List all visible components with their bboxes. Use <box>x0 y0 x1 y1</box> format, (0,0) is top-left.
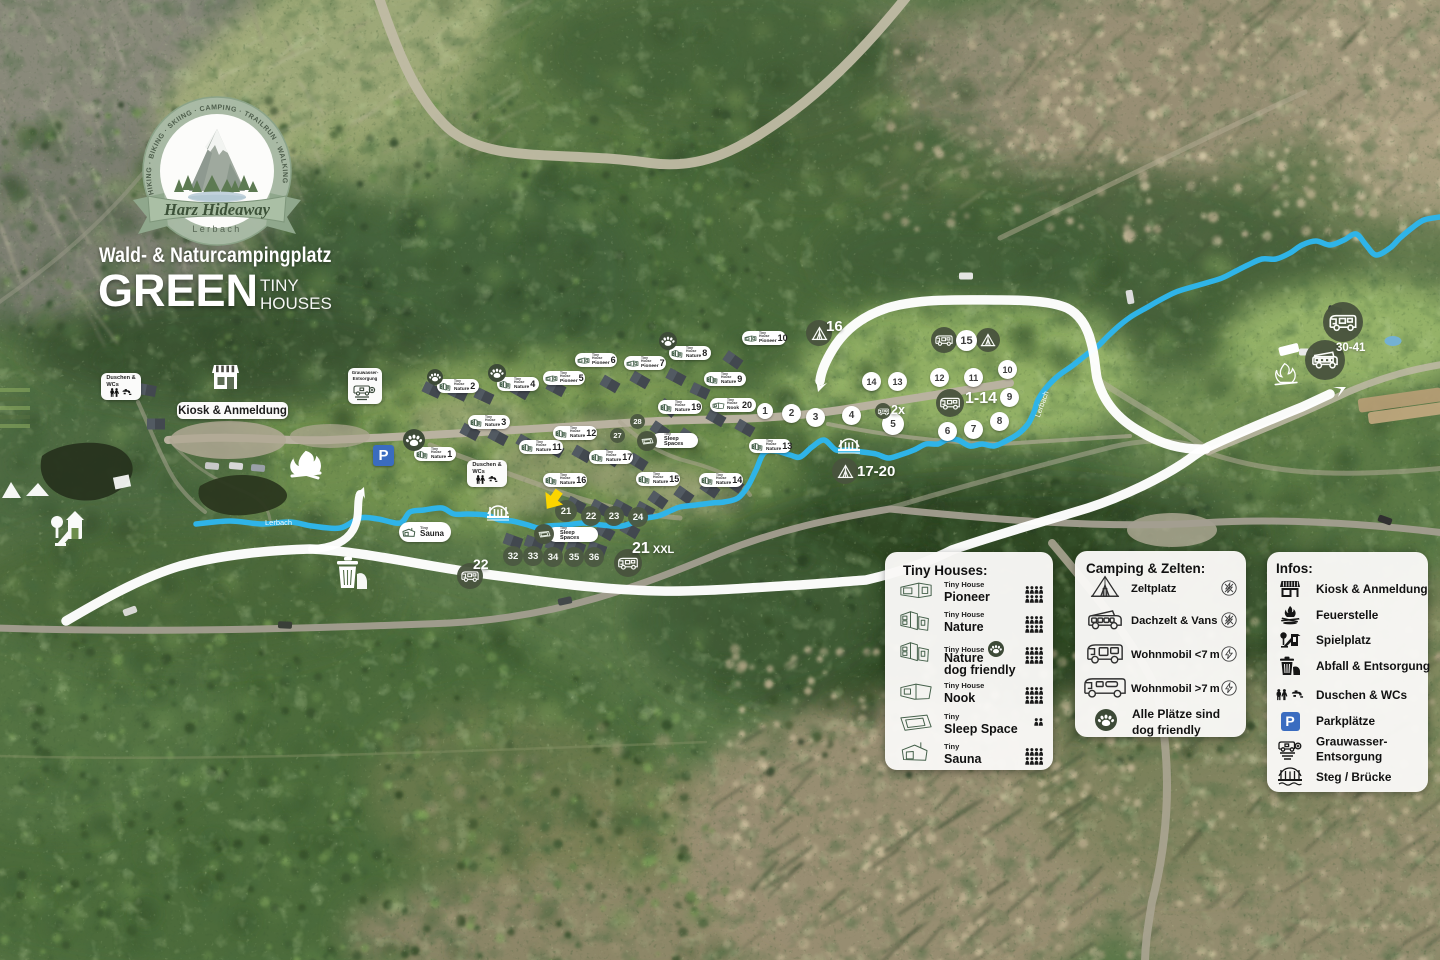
svg-text:Harz Hideaway: Harz Hideaway <box>163 200 271 219</box>
svg-text:Lerbach: Lerbach <box>265 518 292 527</box>
svg-text:Lerbach: Lerbach <box>192 224 241 234</box>
